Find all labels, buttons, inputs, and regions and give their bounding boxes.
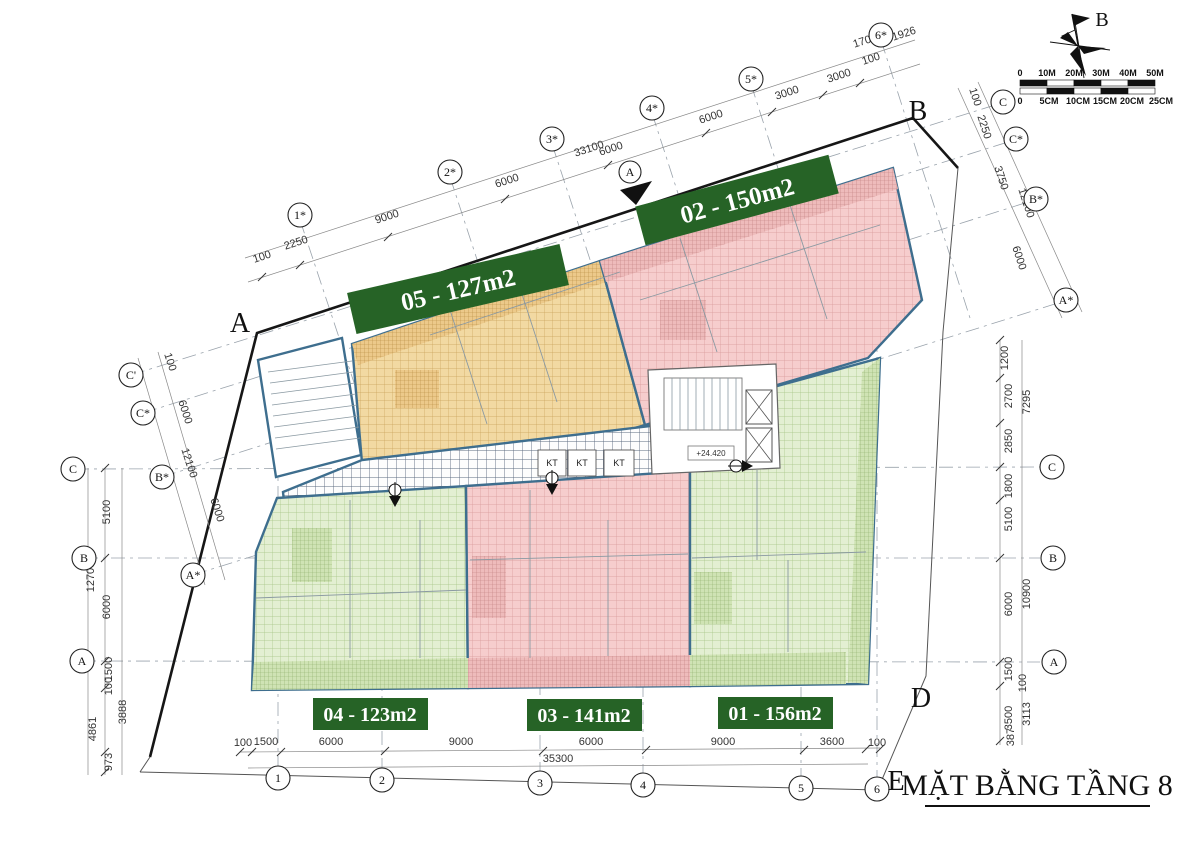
central-core: +24.420 [648,364,780,474]
axis-bubble-top-5: 5* [745,72,757,86]
dim-rv-7: 6000 [1003,592,1015,616]
axis-bubble-right-a: A [1050,655,1059,669]
dim-lv-0: 5100 [101,500,113,524]
unit-01-bath [694,572,732,624]
scale-bar: 0 10M 20M 30M 40M 50M 0 5CM 10CM 15CM 20… [1017,68,1173,106]
corner-letter-a: A [230,308,251,339]
unit-04-balcony [252,658,468,690]
dim-rv-10: 3500 [1003,706,1015,730]
axis-bubble-top-1: 1* [294,208,306,222]
dim-chain-right-vertical: 1200 2700 7295 2850 1800 5100 10900 6000… [996,336,1066,746]
unit-03-bath [472,556,506,618]
axis-bubble-bottom-4: 4 [640,778,646,792]
unit-01-label: 01 - 156m2 [728,703,821,725]
axis-bubble-lt-b: B* [155,470,169,484]
dim-lv-2: 6000 [101,595,113,619]
section-marker-label: A [626,165,635,179]
kt-label-2: KT [576,458,588,468]
dim-chain-left-vertical: 5100 12700 6000 1500 100 3888 4861 973 C… [61,457,129,776]
dim-rv-5: 5100 [1003,507,1015,531]
dim-rv-0: 1200 [999,346,1011,370]
axis-bubble-lt-c1: C' [126,368,136,382]
axis-bubble-lt-c2: C* [136,406,150,420]
kt-label-3: KT [613,458,625,468]
floor-plan-sheet: +24.420 KT KT KT A 05 - 127m2 02 - 150m2… [0,0,1200,848]
scale-cm-3: 15CM [1093,96,1117,106]
dim-top-6: 3000 [774,84,801,103]
scale-m-3: 30M [1092,68,1110,78]
axis-bubble-right-c: C [1048,460,1056,474]
dim-rt-0: 100 [966,86,983,107]
dim-lv-5: 3888 [117,700,129,724]
axis-bubble-right-b: B [1049,551,1057,565]
dim-lt-0: 100 [161,351,178,372]
right-vertical-bubbles: C B A [1040,455,1066,674]
dim-rt-4: 6000 [1009,245,1028,272]
dim-top-3: 6000 [494,172,521,191]
dim-rv-2: 7295 [1021,390,1033,414]
axis-bubble-bottom-6: 6 [874,782,880,796]
dim-rv-11: 3113 [1021,702,1033,726]
right-tilted-bubbles: C C* B* A* [991,90,1078,312]
unit-04-label: 04 - 123m2 [323,704,416,726]
dim-lt-2: 12100 [178,447,199,480]
axis-bubble-bottom-2: 2 [379,773,385,787]
scale-m-0: 0 [1017,68,1022,78]
dim-chain-bottom: 100 1500 6000 9000 6000 9000 3600 100 35… [234,736,889,801]
scale-cm-0: 0 [1017,96,1022,106]
drawing-title: MẶT BẰNG TẦNG 8 [901,768,1172,806]
kt-label-1: KT [546,458,558,468]
dim-top-7: 3000 [826,67,853,86]
dim-rv-9: 100 [1017,674,1029,692]
dim-rv-12: 387 [1005,728,1017,746]
dim-bottom-1: 1500 [254,736,278,748]
dim-bottom-6: 3600 [820,736,844,748]
scale-cm-2: 10CM [1066,96,1090,106]
section-marker-a: A [619,161,652,205]
corner-letter-b: B [909,96,928,127]
unit-03-label: 03 - 141m2 [537,705,630,727]
axis-bubble-bottom-1: 1 [275,771,281,785]
axis-bubble-left-c: C [69,462,77,476]
dim-bottom-0: 100 [234,737,252,749]
left-stair-core [258,338,361,477]
dim-rv-4: 1800 [1003,474,1015,498]
dim-rv-8: 1500 [1003,657,1015,681]
axis-bubble-lt-a: A* [186,568,201,582]
dim-bottom-total: 35300 [543,753,574,765]
axis-bubble-left-b: B [80,551,88,565]
unit-04-bath [292,528,332,582]
axis-bubble-left-a: A [78,654,87,668]
scale-m-5: 50M [1146,68,1164,78]
axis-bubble-bottom-3: 3 [537,776,543,790]
dim-lv-6: 4861 [87,717,99,741]
level-marker: +24.420 [696,449,726,458]
left-vertical-bubbles: C B A [61,457,96,673]
scale-cm-4: 20CM [1120,96,1144,106]
axis-bubble-rt-a: A* [1059,293,1074,307]
floor-plan-drawing: +24.420 KT KT KT A 05 - 127m2 02 - 150m2… [0,0,1200,848]
scale-cm-5: 25CM [1149,96,1173,106]
dim-bottom-7: 100 [868,737,886,749]
dim-bottom-3: 9000 [449,736,473,748]
scale-m-4: 40M [1119,68,1137,78]
dim-bottom-2: 6000 [319,736,343,748]
dim-top-5: 6000 [698,108,725,127]
dim-rv-6: 10900 [1021,579,1033,610]
dim-lv-4: 100 [103,677,115,695]
dim-top-0: 100 [251,249,272,266]
axis-bubble-rt-c2: C* [1009,132,1023,146]
dim-bottom-5: 9000 [711,736,735,748]
scale-m-2: 20M [1065,68,1083,78]
unit-01-balcony [690,652,846,686]
unit-05-bath [395,370,439,408]
dim-top-2: 9000 [374,208,401,227]
axis-bubble-top-6: 6* [875,28,887,42]
axis-bubble-rt-b: B* [1029,192,1043,206]
dim-top-8: 100 [860,51,881,68]
axis-bubble-rt-c1: C [999,95,1007,109]
dim-rt-1: 2250 [974,114,993,141]
dim-bottom-4: 6000 [579,736,603,748]
unit-03-balcony [468,655,690,688]
axis-bubble-top-3: 3* [546,132,558,146]
axis-bubble-bottom-5: 5 [798,781,804,795]
bottom-axis-bubbles: 1 2 3 4 5 6 [266,766,889,801]
dim-rv-3: 2850 [1003,429,1015,453]
axis-bubble-top-2: 2* [444,165,456,179]
dim-lv-7: 973 [103,753,115,771]
dim-top-1: 2250 [283,234,310,253]
corner-letter-d: D [911,683,931,714]
unit-02-bath [660,300,706,340]
scale-cm-1: 5CM [1039,96,1058,106]
title-text: MẶT BẰNG TẦNG 8 [901,768,1172,802]
dim-rt-2: 3750 [991,165,1010,192]
scale-m-1: 10M [1038,68,1056,78]
dim-rv-1: 2700 [1003,384,1015,408]
dim-chain-right-tilted: 100 2250 3750 12100 6000 C C* B* A* [958,82,1082,318]
north-label: B [1095,9,1108,31]
axis-bubble-top-4: 4* [646,101,658,115]
